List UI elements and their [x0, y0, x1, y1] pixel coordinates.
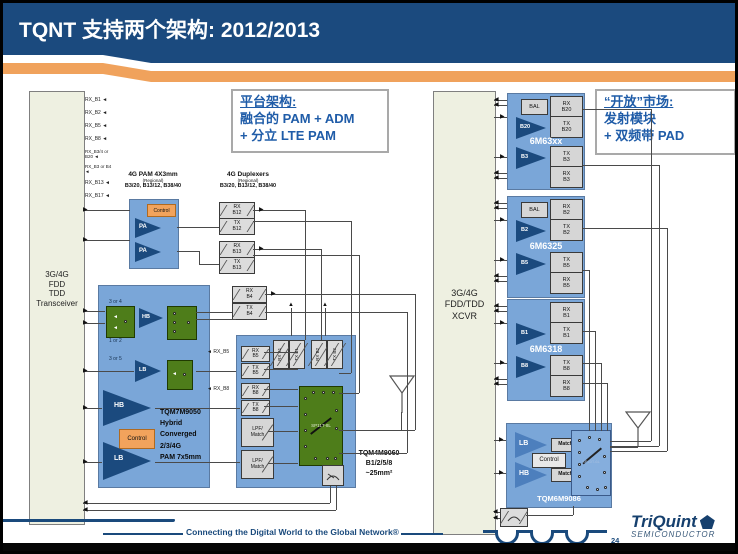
wire: [196, 312, 232, 313]
callout-open-line2: + 双频带 PAD: [604, 128, 727, 145]
wire: [199, 251, 200, 264]
arrow-icon: ▶: [83, 308, 88, 314]
wire: [359, 255, 360, 393]
switch-small: ◄: [167, 360, 193, 390]
coupler-glyph: [326, 470, 340, 482]
wire: [196, 319, 236, 320]
sp10t-switch: SP10T-6L: [571, 430, 611, 496]
pam-header: 4G PAM 4X3mm (Regional) B3/20, B13/12, B…: [111, 171, 195, 189]
footer-rule-right: [401, 533, 443, 535]
callout-open-line1: 发射模块: [604, 111, 727, 128]
arrow-icon: ▶: [259, 207, 264, 213]
arrow-icon: ▶: [500, 257, 505, 263]
wire: [659, 165, 660, 446]
lb-amp-large: LB: [103, 442, 151, 480]
wire: [268, 463, 298, 464]
xcvr-label: 3G/4G FDD/TDD XCVR: [434, 288, 495, 322]
antenna-icon: [389, 375, 415, 413]
top-filter: TX B2: [327, 340, 343, 369]
wire: [83, 210, 130, 211]
wire: [265, 294, 415, 295]
pa-label: PA: [139, 224, 147, 230]
wire: [155, 408, 240, 409]
arrow-icon: ▶: [500, 320, 505, 326]
title-bar: TQNT 支持两个架构: 2012/2013: [3, 3, 735, 55]
arrow-icon: ▶: [83, 320, 88, 326]
wire: [526, 515, 573, 516]
wire: [595, 331, 596, 431]
filter-glyph: [507, 513, 521, 522]
wire: [607, 383, 608, 431]
wire: [407, 312, 408, 453]
b4-filter: RXB4: [232, 286, 267, 303]
arrow-icon: ◀: [494, 308, 499, 314]
wire: [305, 210, 306, 340]
wire: [573, 506, 574, 515]
lb-amp-small: LB: [135, 360, 161, 382]
bottom-bar: [3, 543, 735, 551]
wire: [339, 373, 351, 374]
module-title: TQM6M9086: [507, 494, 611, 503]
wire: [155, 462, 240, 463]
annotation: 3 or 5: [109, 356, 122, 362]
transceiver-label: 3G/4G FDD TDD Transceiver: [30, 270, 84, 308]
wire: [264, 389, 298, 390]
switch-label: SP10T-6L: [572, 459, 610, 464]
brand-logo: TriQuint SEMICONDUCTOR: [631, 512, 715, 539]
arrow-icon: ◄: [113, 315, 118, 320]
arrow-icon: ▶: [83, 405, 88, 411]
amp: B3: [516, 147, 546, 169]
arrow-icon: ▶: [259, 246, 264, 252]
arrow-icon: ▶: [500, 217, 505, 223]
callout-platform: 平台架构: 融合的 PAM + ADM + 分立 LTE PAM: [231, 89, 389, 153]
duplexer-filter: TXB13: [219, 257, 255, 274]
arrow-icon: ▶: [271, 291, 276, 297]
wire: [291, 308, 292, 336]
port-box: TXB2: [550, 219, 583, 241]
duplexer-filter: RXB13: [219, 241, 255, 258]
lpf-match: LPF/Match: [241, 418, 274, 447]
amp: B2: [516, 220, 546, 242]
wire: [610, 447, 638, 448]
wire: [610, 446, 659, 447]
wire: [339, 430, 415, 431]
rx-port-label: RX_B3/4 or B20 ◄: [85, 149, 113, 159]
arrow-icon: ◀: [493, 515, 498, 521]
arrow-icon: ▶: [500, 360, 505, 366]
port-box: RXB5: [550, 272, 583, 294]
footer-rule-left: [103, 533, 183, 535]
wire: [265, 312, 407, 313]
arrow-icon: ◀: [83, 500, 88, 506]
bal-box: BAL: [521, 99, 548, 115]
module-title: 6M63xx: [508, 136, 584, 146]
port-box: RXB8: [550, 375, 583, 397]
wire: [583, 383, 607, 384]
wire: [83, 240, 130, 241]
rx-port-label: RX_B1 ◄: [85, 97, 119, 103]
arrow-icon: ▶: [83, 368, 88, 374]
wire: [264, 352, 298, 353]
band-filter: TXB5: [241, 363, 270, 379]
wire: [83, 371, 134, 372]
annotation: 3 or 4: [109, 299, 122, 305]
bal-box: BAL: [521, 202, 548, 218]
amp: B5: [516, 253, 546, 275]
pa-amp: PA: [135, 242, 161, 262]
pam-control: Control: [147, 204, 176, 217]
wire: [264, 406, 298, 407]
brand-name: TriQuint: [631, 512, 697, 532]
port-box: TXB8: [550, 355, 583, 377]
duplexer-filter: RXB12: [219, 202, 255, 219]
band-filter: TXB8: [241, 400, 270, 416]
small-filter: [500, 508, 528, 527]
port-box: TXB1: [550, 322, 583, 344]
wire: [339, 393, 359, 394]
band-filter: RXB8: [241, 383, 270, 399]
module-6m6325: BAL RXB2 TXB2 B2 6M6325 B5 TXB5 RXB5: [507, 196, 585, 298]
coupler: [322, 465, 344, 486]
module-title: 6M6318: [508, 344, 584, 354]
callout-platform-heading: 平台架构:: [240, 94, 380, 111]
arrow-icon: ▶: [83, 207, 88, 213]
module-6m63xx: BAL RXB20 TXB20 B20 6M63xx B3 TXB3 RXB3: [507, 93, 585, 190]
wire: [336, 486, 337, 510]
top-filter: TX B1: [289, 340, 305, 369]
rx-port-label: RX_B8 ◄: [85, 136, 119, 142]
port-box: RXB20: [550, 96, 583, 118]
wire: [601, 363, 602, 431]
arrow-icon: ▶: [500, 154, 505, 160]
module-6m6318: RXB1 TXB1 B1 6M6318 B8 TXB8 RXB8: [507, 299, 585, 401]
duplexer-filter: TXB12: [219, 218, 255, 235]
rx-port-label: RX_B17 ◄: [85, 193, 119, 199]
wire: [583, 165, 659, 166]
arrow-icon: ◀: [494, 278, 499, 284]
pentagon-logo-icon: [700, 515, 715, 529]
switch-label: SP11T-8L: [300, 423, 342, 428]
switch-small: [167, 306, 197, 340]
ext-rx-label: ◄ RX_B5: [207, 349, 229, 355]
arrow-icon: ◀: [83, 507, 88, 513]
wire: [667, 228, 668, 451]
wire: [325, 308, 326, 336]
wire: [583, 331, 595, 332]
wire: [339, 453, 407, 454]
switch-small: ◄ ◄: [106, 306, 135, 338]
arrow-icon: ◄: [113, 326, 118, 331]
transceiver-box: 3G/4G FDD TDD Transceiver: [29, 91, 85, 525]
footer-tagline: Connecting the Digital World to the Glob…: [186, 527, 399, 537]
wire: [330, 486, 331, 503]
rx-port-label: RX_B2 ◄: [85, 110, 119, 116]
pa-label: PA: [139, 248, 147, 254]
amp: B1: [516, 323, 546, 345]
callout-platform-line2: + 分立 LTE PAM: [240, 128, 380, 145]
lpf-match: LPF/Match: [241, 450, 274, 479]
wire: [253, 255, 359, 256]
wire: [199, 264, 219, 265]
hb-amp: HB: [515, 462, 547, 488]
wire: [83, 503, 330, 504]
port-box: RXB3: [550, 166, 583, 188]
wire: [268, 431, 298, 432]
rx-port-label: RX_B3 or B4 ◄: [85, 164, 113, 174]
wire: [196, 371, 236, 372]
wire: [610, 451, 667, 452]
annotation: 1 or 2: [109, 338, 122, 344]
wire: [610, 441, 651, 442]
arrow-icon: ◀: [494, 175, 499, 181]
module-tqm6m9086: LB Match Control HB Match SP10T-6L TQM6M…: [506, 423, 612, 508]
arrow-icon: ▶: [499, 470, 504, 476]
footer-curve: [3, 519, 175, 522]
wire: [264, 369, 298, 370]
port-box: RXB2: [550, 199, 583, 221]
b4-filter: TXB4: [232, 303, 267, 320]
wire: [651, 109, 652, 441]
tqm7m9050-block: 3 or 4 ◄ ◄ 1 or 2 HB 3 or 5 LB ◄ HB Cont…: [98, 285, 210, 488]
amp: B8: [516, 356, 546, 378]
wire: [177, 227, 219, 228]
wave-line: [589, 530, 607, 533]
arrow-icon: ◀: [494, 205, 499, 211]
wave-line: [554, 530, 565, 533]
wire: [589, 270, 590, 431]
slide: TQNT 支持两个架构: 2012/2013 平台架构: 融合的 PAM + A…: [0, 0, 738, 554]
wire: [583, 109, 651, 110]
wire: [401, 412, 402, 430]
sp11t-switch: SP11T-8L: [299, 386, 343, 466]
brand-sub: SEMICONDUCTOR: [631, 530, 715, 539]
arrow-icon: ▶: [83, 459, 88, 465]
port-box: TXB3: [550, 146, 583, 168]
port-box: RXB1: [550, 302, 583, 324]
wire: [83, 510, 336, 511]
callout-open-market: “开放”市场: 发射模块 + 双频带 PAD: [595, 89, 736, 155]
hb-amp-large: HB: [103, 390, 151, 426]
tqm4m9060-block: RX B1 TX B1 RX B2 TX B2 RXB5 TXB5 RXB8 T…: [236, 335, 356, 488]
arrow-icon: ▶: [83, 237, 88, 243]
pa-amp: PA: [135, 218, 161, 238]
ext-rx-label: ◄ RX_B8: [207, 386, 229, 392]
arrow-icon: ▶: [499, 437, 504, 443]
wire: [583, 363, 601, 364]
arrow-icon: ◀: [494, 381, 499, 387]
header-swoosh: [3, 55, 735, 85]
wire: [583, 228, 667, 229]
tqm7-name: TQM7M9050 Hybrid Converged 2/3/4G PAM 7x…: [160, 407, 208, 463]
module-title: 6M6325: [508, 241, 584, 251]
xcvr-box: 3G/4G FDD/TDD XCVR: [433, 91, 496, 535]
band-filter: RXB5: [241, 346, 270, 362]
rx-port-label: RX_B5 ◄: [85, 123, 119, 129]
wire: [351, 221, 352, 373]
port-box: TXB20: [550, 116, 583, 138]
arrow-icon: ◀: [494, 102, 499, 108]
callout-platform-line1: 融合的 PAM + ADM: [240, 111, 380, 128]
slide-title: TQNT 支持两个架构: 2012/2013: [19, 14, 320, 44]
duplexer-header: 4G Duplexers (Regional) B3/20, B13/12, B…: [206, 171, 290, 189]
wire: [415, 294, 416, 430]
arrow-icon: ▶: [500, 114, 505, 120]
port-box: TXB5: [550, 252, 583, 274]
wire: [253, 221, 351, 222]
wave-line: [519, 530, 530, 533]
arrow-icon: ◄: [172, 372, 177, 377]
hb-amp-small: HB: [139, 308, 163, 328]
pam-block: Control PA PA: [129, 199, 179, 269]
wire: [177, 251, 199, 252]
